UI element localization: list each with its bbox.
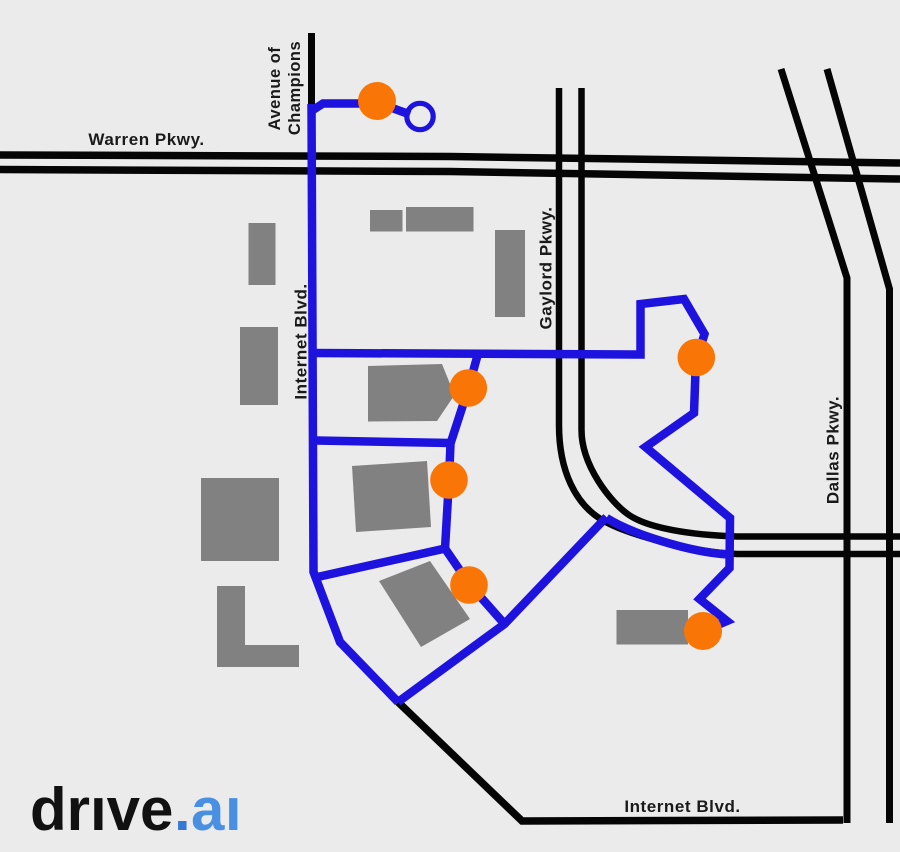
svg-text:Gaylord Pkwy.: Gaylord Pkwy. bbox=[537, 206, 556, 329]
svg-text:Internet Blvd.: Internet Blvd. bbox=[292, 283, 311, 399]
svg-text:aı: aı bbox=[191, 776, 242, 843]
svg-text:Dallas Pkwy.: Dallas Pkwy. bbox=[824, 396, 843, 504]
svg-text:Internet Blvd.: Internet Blvd. bbox=[624, 797, 740, 816]
svg-text:Champions: Champions bbox=[286, 41, 304, 135]
svg-text:.: . bbox=[174, 776, 191, 843]
svg-text:drıve: drıve bbox=[30, 776, 173, 843]
svg-text:Warren Pkwy.: Warren Pkwy. bbox=[88, 130, 204, 149]
svg-text:Avenue of: Avenue of bbox=[266, 47, 284, 131]
